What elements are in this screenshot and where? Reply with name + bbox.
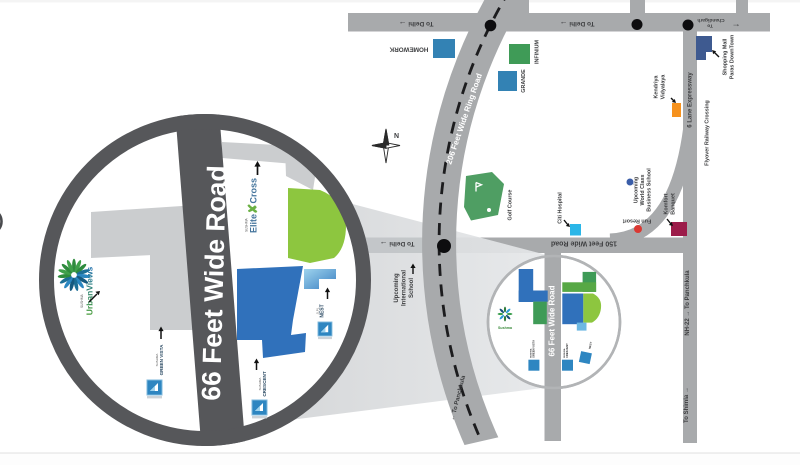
svg-text:SUSHMA: SUSHMA xyxy=(245,217,249,232)
svg-text:CRESCENT: CRESCENT xyxy=(262,371,267,396)
svg-text:Upcoming: Upcoming xyxy=(633,177,639,203)
svg-text:SUSHMA: SUSHMA xyxy=(530,348,533,358)
svg-text:Komfort: Komfort xyxy=(663,193,669,214)
svg-text:Paras DownTown: Paras DownTown xyxy=(729,35,735,80)
svg-text:Flyover Railway Crossing: Flyover Railway Crossing xyxy=(704,100,710,166)
svg-text:Banquet: Banquet xyxy=(670,193,676,215)
svg-text:To Shimla →: To Shimla → xyxy=(684,387,690,423)
svg-text:School: School xyxy=(409,278,415,298)
svg-text:Sushma: Sushma xyxy=(498,326,513,330)
svg-text:World Class: World Class xyxy=(640,174,646,205)
svg-text:Vidyalaya: Vidyalaya xyxy=(660,74,666,100)
svg-text:SUSHMA: SUSHMA xyxy=(563,348,566,358)
svg-text:To Delhi →: To Delhi → xyxy=(380,239,415,248)
svg-text:150 Feet Wide Road: 150 Feet Wide Road xyxy=(551,240,617,247)
svg-text:N: N xyxy=(394,133,399,140)
svg-text:SUSHMA: SUSHMA xyxy=(258,378,262,391)
svg-text:SUSHMA: SUSHMA xyxy=(80,293,84,308)
svg-text:SUSHMA: SUSHMA xyxy=(155,354,159,367)
svg-text:JLPL: JLPL xyxy=(315,307,319,314)
svg-text:NH-22 → To Panchkula: NH-22 → To Panchkula xyxy=(685,270,691,336)
svg-text:NEST: NEST xyxy=(319,304,325,317)
svg-text:To Delhi →: To Delhi → xyxy=(399,19,434,28)
svg-text:GRANDE: GRANDE xyxy=(521,69,527,93)
svg-text:Upcoming: Upcoming xyxy=(394,273,400,303)
svg-text:Kendriya: Kendriya xyxy=(653,74,659,98)
svg-text:UrbanViews: UrbanViews xyxy=(84,266,94,315)
svg-text:GREEN VISTA: GREEN VISTA xyxy=(159,344,164,375)
svg-text:HOMEWORK: HOMEWORK xyxy=(389,45,428,52)
svg-text:International: International xyxy=(402,270,408,306)
svg-text:To: To xyxy=(707,23,713,29)
svg-text:Golf Course: Golf Course xyxy=(507,190,513,221)
svg-text:66 Feet Wide Road: 66 Feet Wide Road xyxy=(196,165,232,401)
svg-text:→: → xyxy=(732,18,741,28)
svg-text:To Delhi →: To Delhi → xyxy=(560,19,595,28)
svg-text:Fun Resort: Fun Resort xyxy=(623,218,652,224)
svg-text:6 Lane Expressway: 6 Lane Expressway xyxy=(688,72,694,128)
svg-text:INFINIUM: INFINIUM xyxy=(534,40,540,64)
svg-text:Shopping Mall: Shopping Mall xyxy=(722,38,728,75)
svg-text:Business School: Business School xyxy=(646,168,652,212)
svg-text:Chandigarh: Chandigarh xyxy=(697,17,724,23)
svg-text:Citi Hospital: Citi Hospital xyxy=(557,192,563,224)
svg-text:66 Feet Wide Road: 66 Feet Wide Road xyxy=(548,285,557,356)
